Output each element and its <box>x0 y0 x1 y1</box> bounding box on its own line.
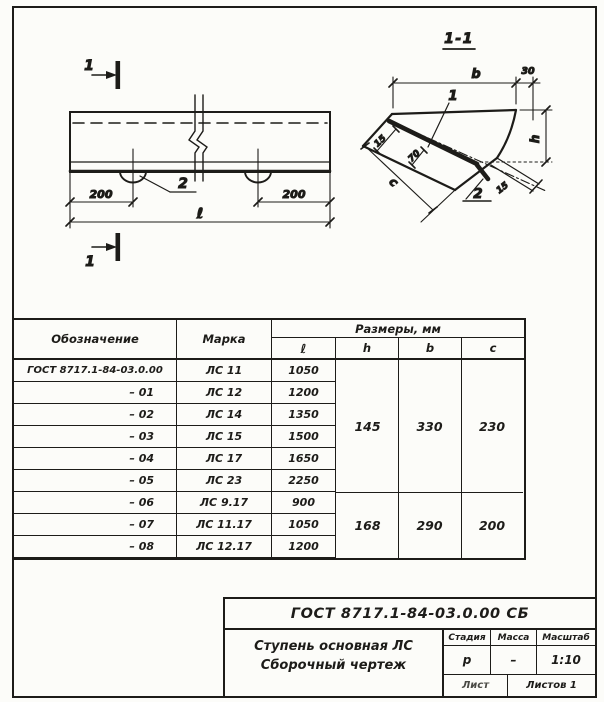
cell-mark: ЛС 23 <box>177 470 272 492</box>
title-block: ГОСТ 8717.1-84-03.0.00 СБ Ступень основн… <box>223 597 597 698</box>
mass-label: Масса <box>491 630 537 645</box>
cell-mark: ЛС 14 <box>177 404 272 426</box>
dim-30-label: 30 <box>521 66 535 77</box>
cell-length: 900 <box>272 492 336 514</box>
section-mark-bottom-label: 1 <box>85 254 95 270</box>
header-dimensions: Размеры, мм <box>272 320 524 338</box>
stage-label: Стадия <box>444 630 491 645</box>
cell-designation: – 06 <box>14 492 177 514</box>
header-dimensions-group: Размеры, мм ℓ h b c <box>272 320 524 358</box>
cell-designation: – 02 <box>14 404 177 426</box>
sheets-count-label: Листов 1 <box>508 675 595 696</box>
drawing-name: Ступень основная ЛС Сборочный чертеж <box>225 630 444 696</box>
cell-length: 1200 <box>272 536 336 558</box>
scale-value: 1:10 <box>537 646 595 674</box>
cell-designation: – 04 <box>14 448 177 470</box>
section-view-title: 1-1 <box>444 31 474 47</box>
cell-mark: ЛС 15 <box>177 426 272 448</box>
dim-15-bottom-label: 15 <box>495 181 511 197</box>
callout-2-label: 2 <box>473 186 482 202</box>
sheet-label: Лист <box>444 675 508 696</box>
callout-1-label: 1 <box>448 88 457 104</box>
drawing-name-line1: Ступень основная ЛС <box>225 637 442 656</box>
callout-1-leader <box>428 103 449 147</box>
header-designation: Обозначение <box>14 320 177 358</box>
header-sub-c: c <box>462 338 524 358</box>
cell-mark: ЛС 11.17 <box>177 514 272 536</box>
dimensions-table: Обозначение Марка Размеры, мм ℓ h b c ГО… <box>12 318 526 560</box>
stage-value: р <box>444 646 491 674</box>
cell-mark: ЛС 9.17 <box>177 492 272 514</box>
cell-mark: ЛС 17 <box>177 448 272 470</box>
cell-designation: – 05 <box>14 470 177 492</box>
header-sub-l: ℓ <box>272 338 336 358</box>
dim-15-top-label: 15 <box>373 134 389 150</box>
dim-200-right: 200 <box>283 188 306 201</box>
embedded-insert <box>389 121 477 164</box>
dim-200-left: 200 <box>90 188 113 201</box>
mass-value: – <box>491 646 537 674</box>
drawing-sheet: 1 <box>0 0 604 702</box>
section-mark-bottom <box>92 233 120 261</box>
drawing-views: 1 <box>0 0 604 318</box>
merged-h-group1: 145 <box>336 360 399 492</box>
section-view: 1-1 b 30 <box>361 31 552 222</box>
cell-length: 1650 <box>272 448 336 470</box>
title-block-designation: ГОСТ 8717.1-84-03.0.00 СБ <box>225 599 595 630</box>
cell-length: 1200 <box>272 382 336 404</box>
cell-length: 2250 <box>272 470 336 492</box>
cell-designation: – 03 <box>14 426 177 448</box>
dim-c-label: c <box>386 175 401 190</box>
dim-b-label: b <box>471 67 480 82</box>
merged-h-group2: 168 <box>336 492 399 558</box>
cell-designation: ГОСТ 8717.1-84-03.0.00 <box>14 360 177 382</box>
header-sub-b: b <box>399 338 462 358</box>
cell-length: 1050 <box>272 514 336 536</box>
title-block-grid: Стадия Масса Масштаб р – 1:10 Лист Листо… <box>444 630 595 696</box>
cell-mark: ЛС 12 <box>177 382 272 404</box>
plan-view: 1 <box>66 58 334 270</box>
cell-designation: – 07 <box>14 514 177 536</box>
cell-mark: ЛС 11 <box>177 360 272 382</box>
cell-designation: – 08 <box>14 536 177 558</box>
dim-h-label: h <box>528 135 542 144</box>
merged-b-group1: 330 <box>398 360 461 492</box>
cell-length: 1500 <box>272 426 336 448</box>
header-mark: Марка <box>177 320 272 358</box>
table-header: Обозначение Марка Размеры, мм ℓ h b c <box>14 320 524 360</box>
cell-designation: – 01 <box>14 382 177 404</box>
cell-mark: ЛС 12.17 <box>177 536 272 558</box>
dim-length-l: ℓ <box>196 206 204 222</box>
header-sub-h: h <box>336 338 399 358</box>
section-mark-top <box>92 61 120 89</box>
scale-label: Масштаб <box>537 630 595 645</box>
cell-length: 1050 <box>272 360 336 382</box>
merged-c-group1: 230 <box>461 360 523 492</box>
break-lines <box>189 95 207 181</box>
section-mark-top-label: 1 <box>84 58 94 74</box>
table-body: ГОСТ 8717.1-84-03.0.00 ЛС 11 1050 – 01 Л… <box>14 360 524 558</box>
merged-c-group2: 200 <box>461 492 523 558</box>
drawing-name-line2: Сборочный чертеж <box>225 656 442 675</box>
merged-b-group2: 290 <box>398 492 461 558</box>
loop-callout-label: 2 <box>178 176 188 192</box>
cell-length: 1350 <box>272 404 336 426</box>
